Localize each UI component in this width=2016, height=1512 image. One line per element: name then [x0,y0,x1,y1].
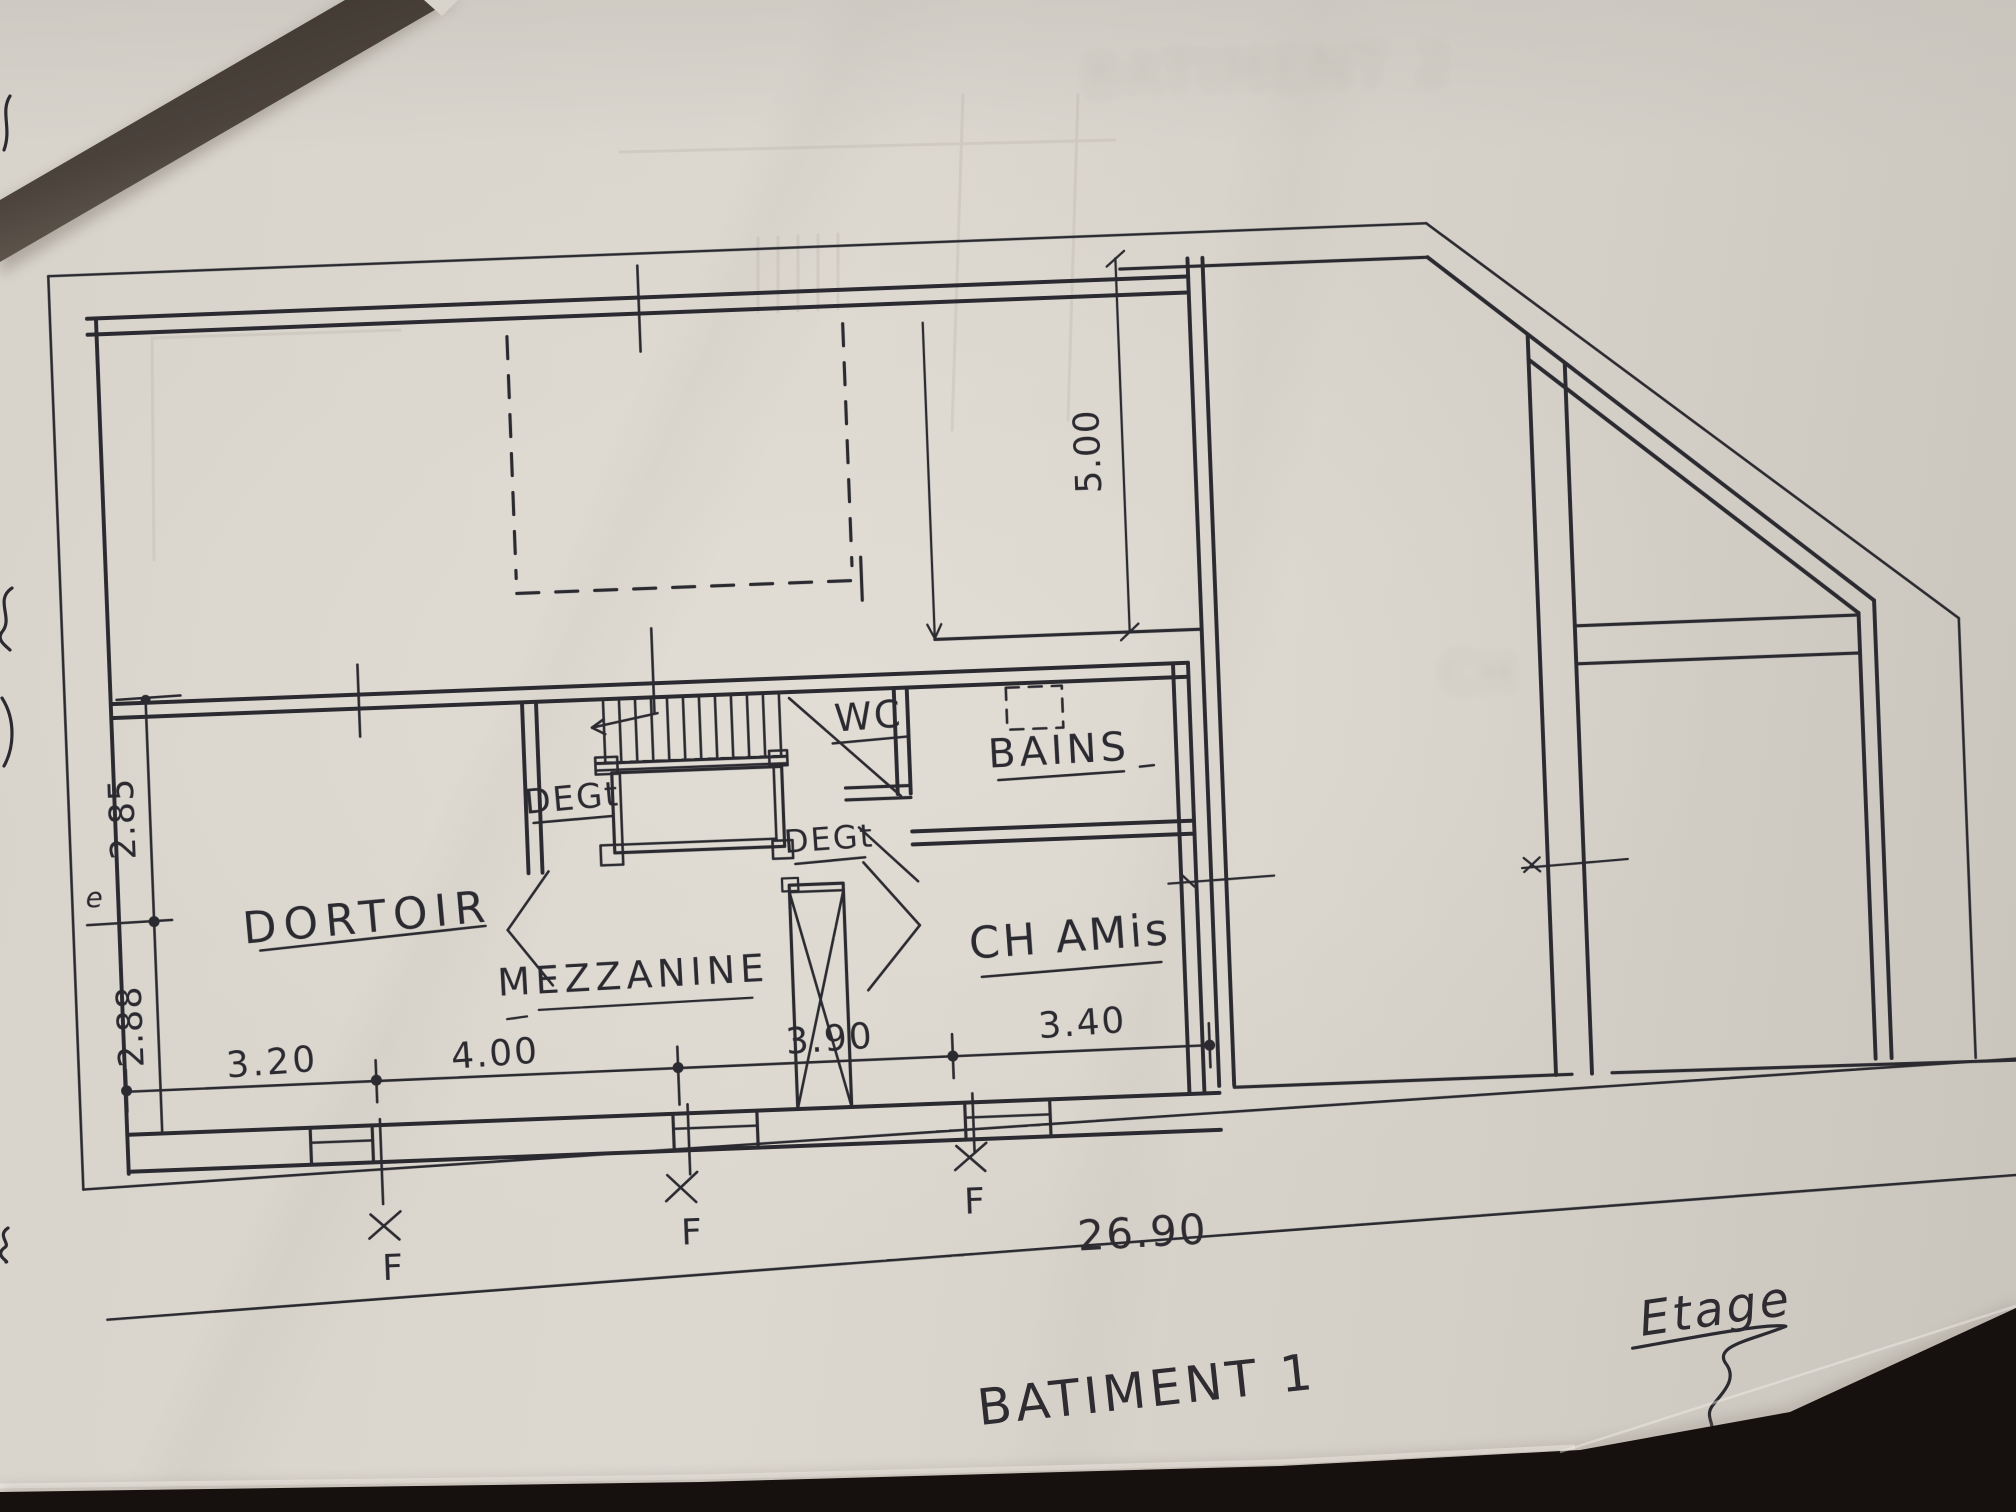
dimension-left-upper: 2.85 [102,777,145,860]
window-3: F [952,1090,1054,1223]
window-mark-f2: F [680,1212,702,1254]
dimension-left-lower: 2.88 [110,985,153,1068]
left-dimension-chain: 2.85 2.88 e [78,693,197,1136]
wc-room: WC [789,688,911,802]
staircase [591,692,793,865]
window-mark-f1: F [381,1247,403,1289]
window-cross-mark [665,1172,698,1203]
door-swing [506,871,551,930]
window-cross-mark [954,1143,987,1172]
window-1: F [310,1118,404,1291]
photo-of-floor-plan: BATIMENT 2 CH 26.90 [0,0,2016,1512]
bleed-through-title: BATIMENT 2 [1082,35,1456,108]
dortoir-partition [499,702,553,987]
bains-room: BAINS [907,681,1195,845]
stairs-direction-arrow [592,713,659,735]
room-label-mezzanine: MEZZANINE [496,946,770,1005]
stairs-hatch [603,692,781,761]
window-cross-mark [368,1211,401,1240]
overall-width-value: 26.90 [1076,1204,1209,1260]
window-2: F [663,1102,763,1254]
svg-text:Etage: Etage [1635,1270,1795,1347]
margin-mark: e [85,881,103,915]
stair-void [598,766,793,865]
title-building: BATIMENT 1 [974,1343,1319,1437]
room-label-ch-amis: CH AMis [967,904,1172,970]
void-opening-dashed [507,324,855,594]
courtyard-depth-value: 5.00 [1066,409,1110,495]
window-mark-f3: F [963,1181,985,1223]
bleed-through-marks: BATIMENT 2 CH [152,35,1519,702]
duct-shaft [782,876,852,1109]
bleed-through-room-label: CH [1441,646,1519,702]
dimension-bottom-3: 3.90 [784,1016,875,1063]
dimension-bottom-2: 4.00 [450,1030,541,1077]
room-label-bains: BAINS [987,724,1131,778]
right-building-walls [1144,227,2016,1092]
degagement-labels: DEGt DEGt [523,763,918,896]
overlapping-paper-corner [0,0,460,275]
void-opening-end-tick [861,557,863,600]
dimension-bottom-1: 3.20 [225,1039,320,1087]
bottom-dimension-chain: 3.20 4.00 3.90 3.40 [119,996,1217,1125]
ch-amis-door-swing [863,860,922,990]
room-label-degagement-2: DEGt [783,816,876,861]
floor-plan-drawing: 26.90 5.00 [48,201,2016,1512]
room-label-wc: WC [833,692,904,741]
room-label-dortoir: DORTOIR [241,881,495,954]
wall-ticks [343,266,655,737]
dimension-bottom-4: 3.40 [1037,1000,1128,1047]
